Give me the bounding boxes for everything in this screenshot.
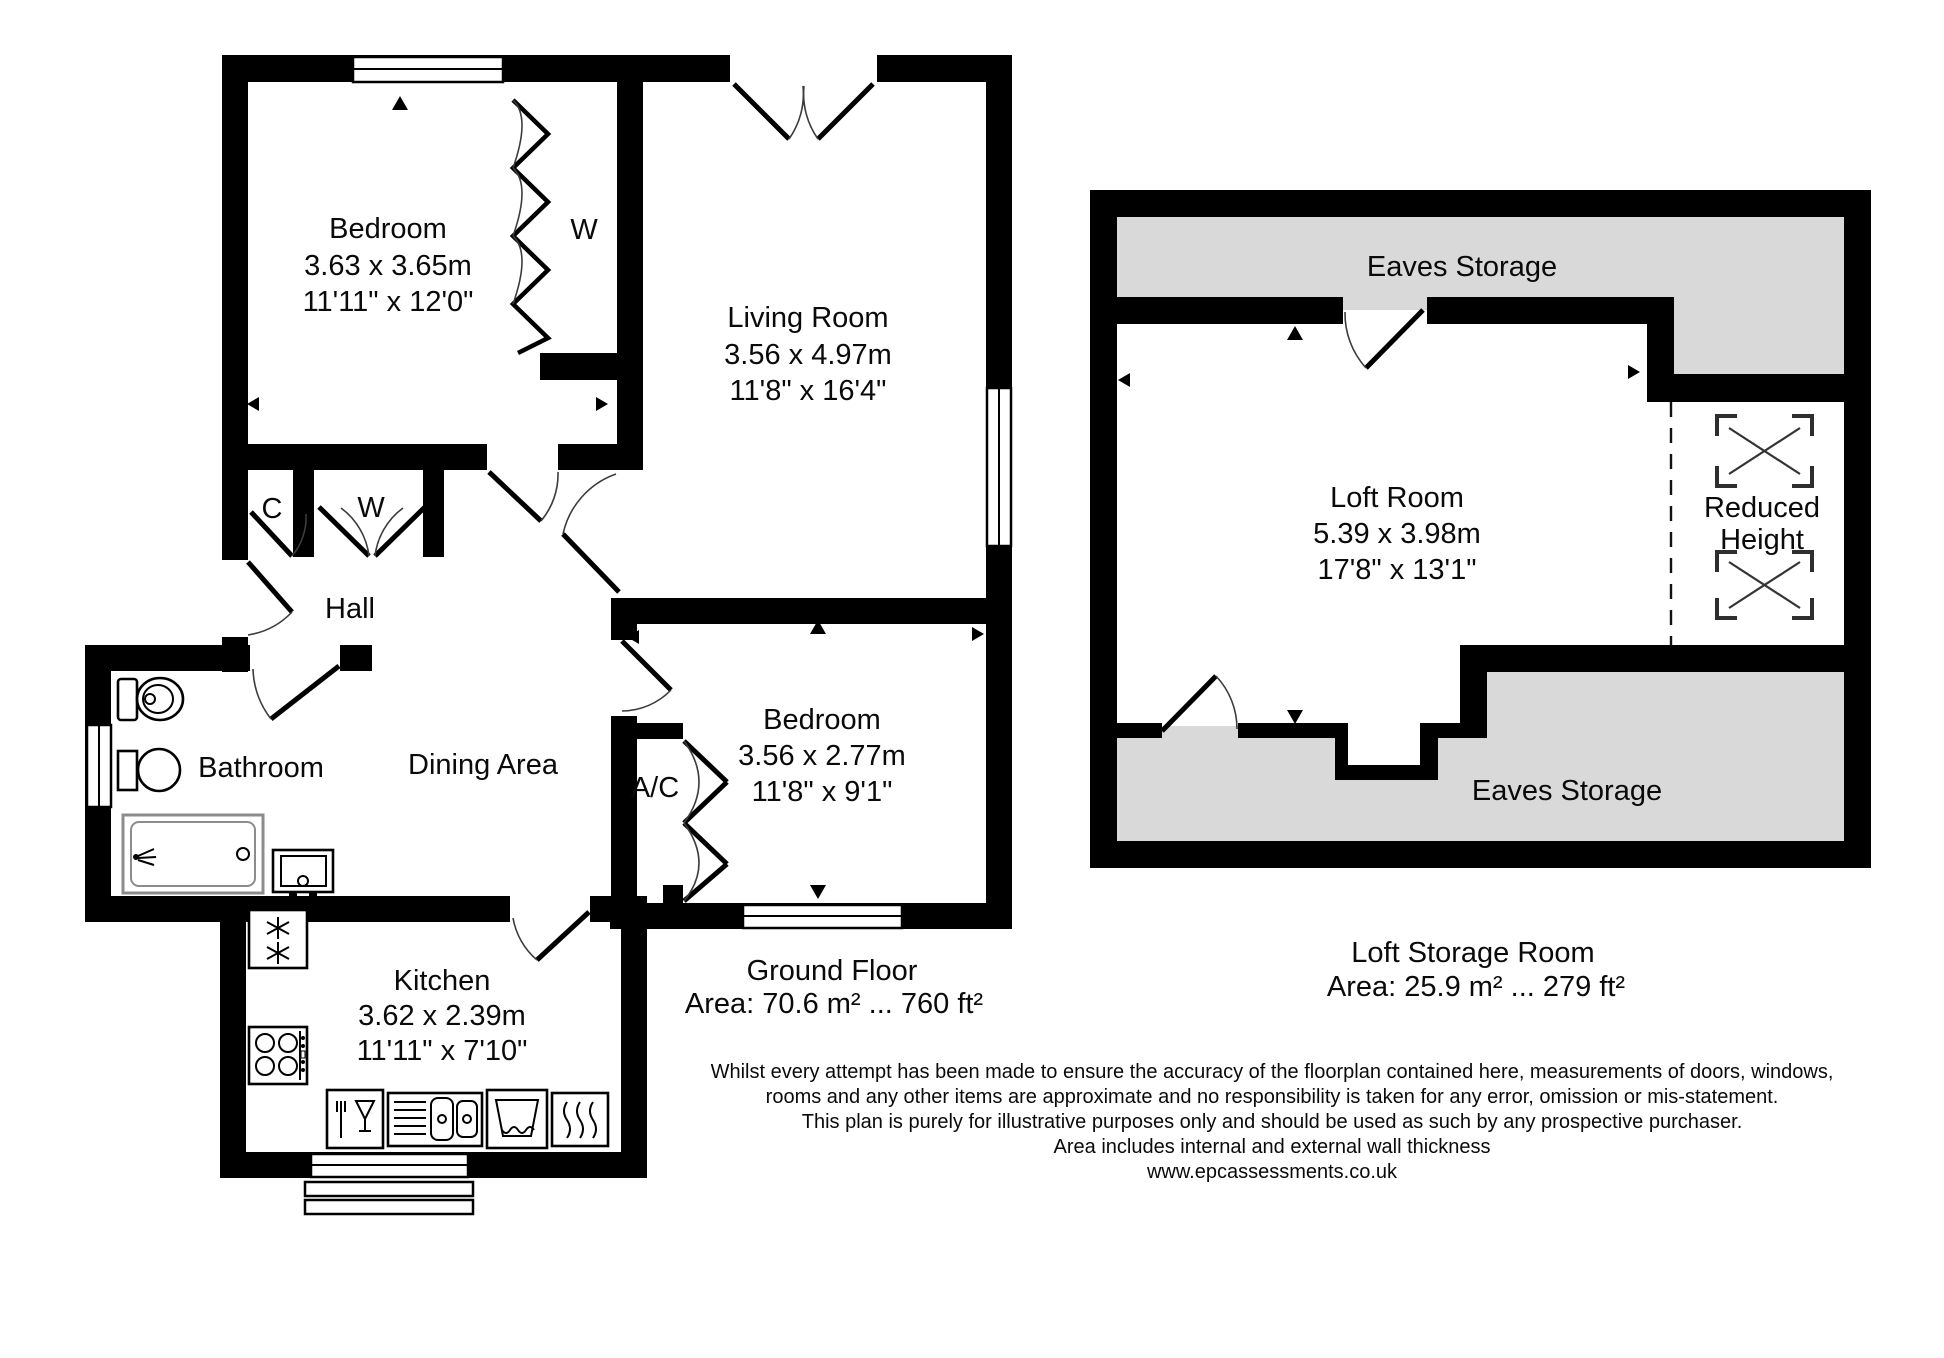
arrow-up-icon (1287, 326, 1303, 340)
bedroom-1-imperial: 11'11" x 12'0" (303, 286, 474, 318)
hatch-box-icon (1717, 416, 1812, 486)
disclaimer-line-3: This plan is purely for illustrative pur… (802, 1111, 1743, 1133)
bathroom-window (87, 725, 111, 807)
bedroom-1-door (489, 472, 558, 521)
bedroom-2-imperial: 11'8" x 9'1" (752, 776, 893, 808)
loft-title: Loft Storage Room (1351, 937, 1594, 969)
bedroom-1-window (353, 57, 503, 82)
bathroom-fixtures (118, 678, 333, 900)
hatch-box-icon (1717, 552, 1812, 618)
arrow-right-icon (1628, 365, 1640, 379)
front-door (248, 562, 292, 635)
floorplan-canvas: Bedroom 3.63 x 3.65m 11'11" x 12'0" Livi… (0, 0, 1944, 1358)
loft-area: Area: 25.9 m² ... 279 ft² (1327, 971, 1626, 1003)
disclaimer-line-2: rooms and any other items are approximat… (766, 1086, 1779, 1108)
arrow-down-icon (810, 885, 826, 899)
loft-room-imperial: 17'8" x 13'1" (1317, 554, 1476, 586)
toilet-icon (118, 678, 183, 720)
kitchen-door (513, 912, 589, 960)
kitchen-imperial: 11'11" x 7'10" (357, 1035, 528, 1067)
kitchen-metric: 3.62 x 2.39m (358, 1000, 526, 1032)
arrow-up-icon (392, 96, 408, 110)
airing-cupboard-label: A/C (631, 772, 679, 804)
kitchen-label: Kitchen (394, 965, 491, 997)
patio-doors (734, 84, 873, 139)
loft-room-metric: 5.39 x 3.98m (1313, 518, 1481, 550)
ground-floor-plan: Bedroom 3.63 x 3.65m 11'11" x 12'0" Livi… (85, 55, 1012, 1214)
ground-floor-title: Ground Floor (747, 955, 918, 987)
bedroom-2-window (743, 905, 902, 928)
bedroom-1-metric: 3.63 x 3.65m (304, 250, 472, 282)
living-room-imperial: 11'8" x 16'4" (730, 375, 887, 407)
fridge-freezer-icon (249, 910, 307, 968)
loft-plan: Reduced Height Loft Room 5.39 x 3.98m (1090, 190, 1871, 1003)
ground-floor-area: Area: 70.6 m² ... 760 ft² (685, 988, 984, 1020)
bedroom-1-label: Bedroom (329, 213, 447, 245)
eaves-storage-bottom-label: Eaves Storage (1472, 775, 1662, 807)
arrow-down-icon (1287, 710, 1303, 724)
living-room-door (563, 474, 619, 592)
bedroom-2-label: Bedroom (763, 704, 881, 736)
arrow-right-icon (596, 397, 608, 411)
closet-w-label: W (357, 492, 385, 524)
living-room-metric: 3.56 x 4.97m (724, 339, 892, 371)
bedroom-2-metric: 3.56 x 2.77m (738, 740, 906, 772)
dryer-icon (487, 1090, 547, 1148)
arrow-right-icon (972, 627, 984, 641)
wardrobe-bifold-doors (513, 100, 548, 353)
corner-basin-icon (273, 850, 333, 900)
airing-cupboard-doors (684, 741, 727, 901)
reduced-height-label-2: Height (1720, 524, 1804, 556)
living-room-label: Living Room (727, 302, 888, 334)
hall-label: Hall (325, 593, 375, 625)
closet-c-label: C (262, 493, 283, 525)
reduced-height-label-1: Reduced (1704, 492, 1820, 524)
bedroom-2-door (622, 641, 671, 711)
bathtub-icon (123, 815, 263, 893)
loft-room-door (1345, 310, 1423, 368)
hob-icon (249, 1027, 307, 1084)
arrow-left-icon (247, 397, 259, 411)
utensils-unit-icon (327, 1090, 383, 1148)
disclaimer-line-4: Area includes internal and external wall… (1054, 1136, 1491, 1158)
arrow-left-icon (1118, 373, 1130, 387)
bathroom-door (253, 666, 339, 719)
kitchen-window (305, 1154, 473, 1214)
eaves-storage-door (1162, 676, 1237, 731)
bathroom-label: Bathroom (198, 752, 324, 784)
basin-icon (118, 749, 180, 791)
living-room-window (987, 388, 1011, 546)
disclaimer-website: www.epcassessments.co.uk (1146, 1161, 1398, 1183)
floorplan-page: Bedroom 3.63 x 3.65m 11'11" x 12'0" Livi… (0, 0, 1944, 1358)
disclaimer-line-1: Whilst every attempt has been made to en… (711, 1061, 1834, 1083)
disclaimer-block: Whilst every attempt has been made to en… (711, 1061, 1834, 1183)
eaves-storage-top-label: Eaves Storage (1367, 251, 1557, 283)
sink-icon (388, 1093, 482, 1146)
heater-icon (552, 1093, 608, 1146)
dining-area-label: Dining Area (408, 749, 559, 781)
loft-room-label: Loft Room (1330, 482, 1464, 514)
wardrobe-label: W (570, 214, 598, 246)
reduced-height-zone: Reduced Height (1671, 402, 1820, 645)
